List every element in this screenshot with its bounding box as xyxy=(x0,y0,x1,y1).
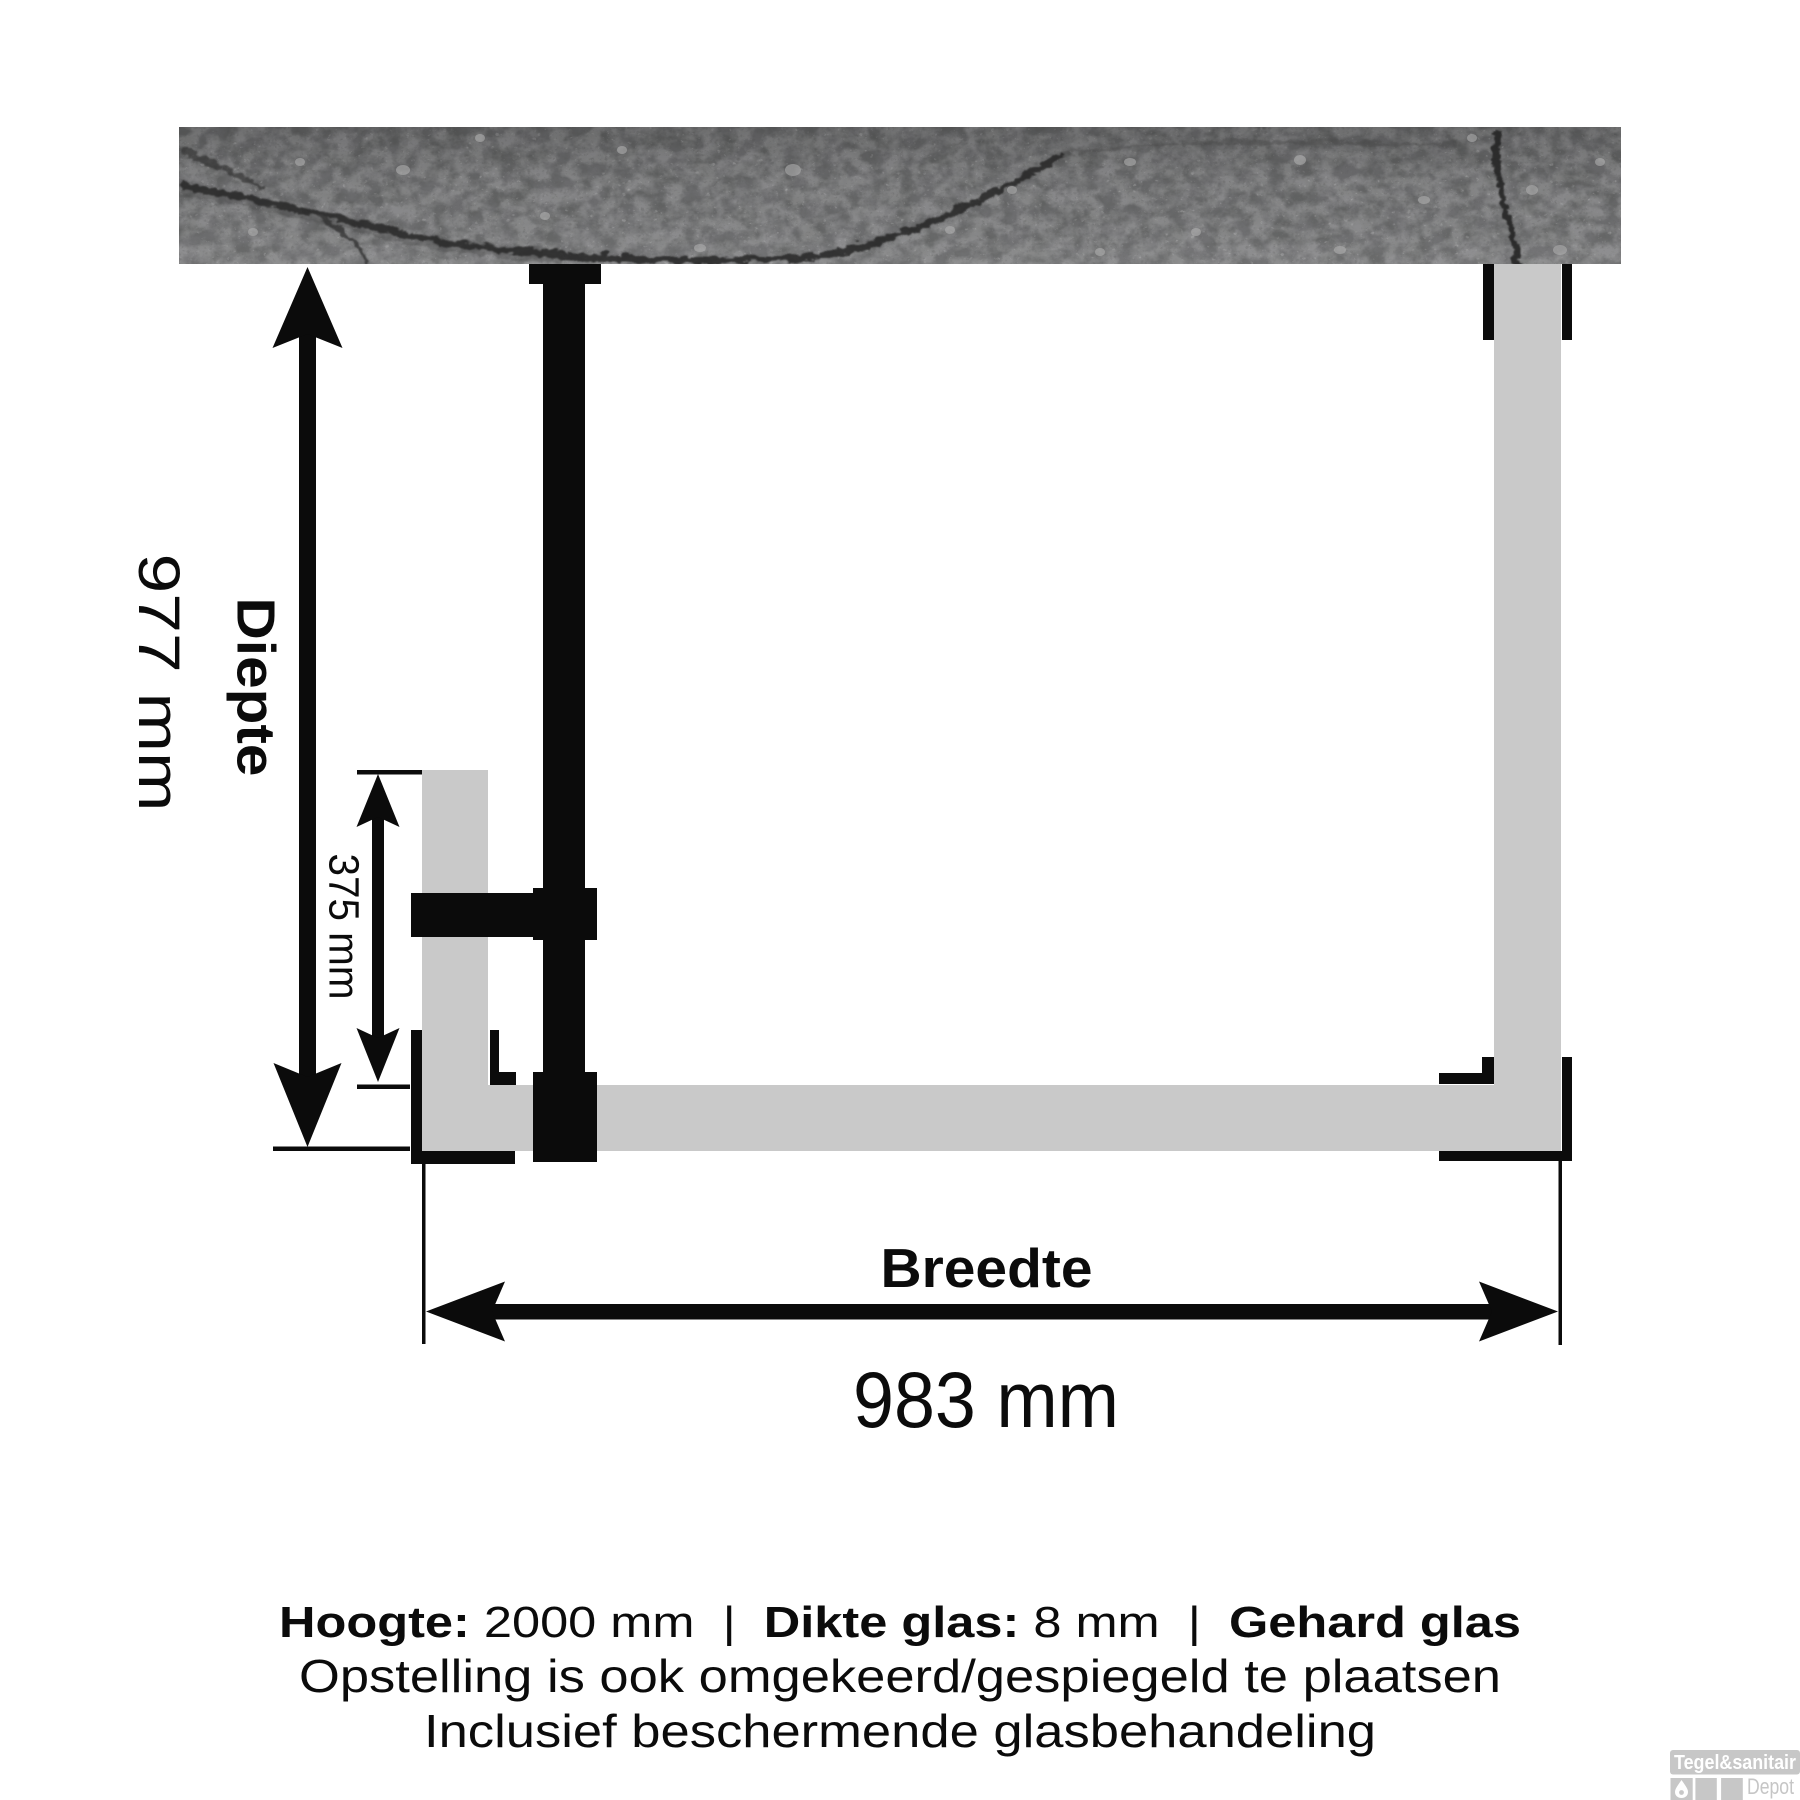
svg-text:Breedte: Breedte xyxy=(881,1237,1093,1299)
svg-text:Opstelling is ook omgekeerd/ge: Opstelling is ook omgekeerd/gespiegeld t… xyxy=(299,1650,1501,1702)
svg-text:977 mm: 977 mm xyxy=(126,554,191,812)
svg-text:Diepte: Diepte xyxy=(226,598,286,777)
svg-text:Depot: Depot xyxy=(1747,1774,1794,1799)
svg-text:Tegel&sanitair: Tegel&sanitair xyxy=(1674,1752,1796,1774)
svg-text:Hoogte: 2000 mm | Dikte glas: Hoogte: 2000 mm | Dikte glas: 8 mm | Geh… xyxy=(279,1598,1521,1647)
svg-text:Inclusief beschermende glasbeh: Inclusief beschermende glasbehandeling xyxy=(424,1705,1376,1757)
svg-text:983 mm: 983 mm xyxy=(853,1355,1119,1444)
svg-text:375 mm: 375 mm xyxy=(320,854,368,1000)
